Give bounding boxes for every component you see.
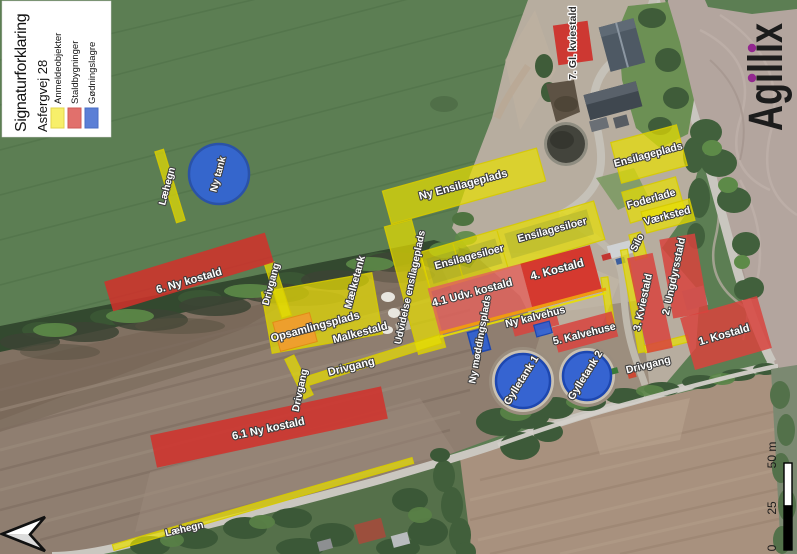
svg-text:Gødningslagre: Gødningslagre <box>87 42 98 104</box>
svg-text:7. Gl. kviestald: 7. Gl. kviestald <box>567 6 579 80</box>
svg-text:Signaturforklaring: Signaturforklaring <box>13 14 30 132</box>
svg-text:Anmeldeobjekter: Anmeldeobjekter <box>53 33 64 104</box>
svg-text:Agıllıx: Agıllıx <box>739 23 794 131</box>
svg-text:50 m: 50 m <box>765 442 779 469</box>
svg-text:Asfergvej 28: Asfergvej 28 <box>35 60 50 132</box>
svg-text:0: 0 <box>765 544 779 551</box>
svg-text:Staldbygninger: Staldbygninger <box>70 41 81 104</box>
svg-text:25: 25 <box>765 501 779 515</box>
